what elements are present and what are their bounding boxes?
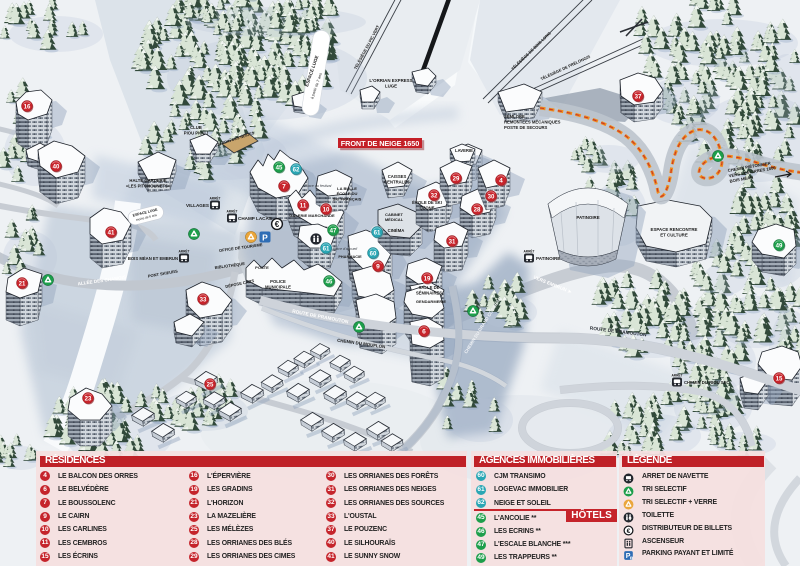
svg-text:15: 15 xyxy=(776,375,783,382)
svg-text:40: 40 xyxy=(53,163,60,170)
svg-text:CINÉMA: CINÉMA xyxy=(388,228,405,233)
svg-text:€: € xyxy=(275,220,280,229)
svg-text:PATINOIRE: PATINOIRE xyxy=(536,256,560,261)
svg-text:CHAMP LACAS: CHAMP LACAS xyxy=(238,216,272,221)
svg-text:61: 61 xyxy=(323,245,330,252)
svg-text:MÉDICAL: MÉDICAL xyxy=(385,217,404,222)
svg-text:ARRÊT: ARRÊT xyxy=(672,373,683,378)
svg-text:4: 4 xyxy=(499,177,503,184)
svg-text:37: 37 xyxy=(635,93,642,100)
svg-text:SÉMINAIRES: SÉMINAIRES xyxy=(416,290,442,295)
svg-text:47: 47 xyxy=(330,227,337,234)
svg-text:HALTE GARDERIE: HALTE GARDERIE xyxy=(129,178,166,183)
svg-text:PIOU PIOU !: PIOU PIOU ! xyxy=(184,130,208,135)
svg-text:POSTE DE SECOURS: POSTE DE SECOURS xyxy=(504,125,548,130)
svg-text:GENDARMERIE: GENDARMERIE xyxy=(416,299,447,304)
svg-text:SKI FRANÇAIS: SKI FRANÇAIS xyxy=(333,196,362,201)
svg-text:29: 29 xyxy=(453,175,460,182)
svg-text:OZONE: OZONE xyxy=(419,205,434,210)
svg-text:32: 32 xyxy=(431,192,438,199)
svg-text:CLUB: CLUB xyxy=(190,125,202,130)
svg-text:41: 41 xyxy=(108,229,115,236)
svg-text:61: 61 xyxy=(374,229,381,236)
svg-text:45: 45 xyxy=(276,164,283,171)
svg-text:7: 7 xyxy=(282,183,286,190)
svg-text:19: 19 xyxy=(424,275,431,282)
svg-text:Place d'accueil: Place d'accueil xyxy=(333,247,358,251)
svg-text:11: 11 xyxy=(300,202,307,209)
svg-text:33: 33 xyxy=(200,296,207,303)
svg-text:ARRÊT: ARRÊT xyxy=(210,196,221,201)
svg-text:LUGE: LUGE xyxy=(385,84,397,89)
svg-text:16: 16 xyxy=(24,103,31,110)
svg-text:ESPACE RENCONTRE: ESPACE RENCONTRE xyxy=(651,227,698,232)
svg-text:28: 28 xyxy=(474,206,481,213)
svg-text:CHEMIN DU RIOU SEC: CHEMIN DU RIOU SEC xyxy=(684,380,729,385)
svg-text:ÉCOLE DU: ÉCOLE DU xyxy=(337,191,358,196)
svg-text:31: 31 xyxy=(449,238,456,245)
svg-text:60: 60 xyxy=(370,250,377,257)
svg-text:62: 62 xyxy=(293,166,300,173)
svg-text:BOIS MÉAN ET EMBRUN: BOIS MÉAN ET EMBRUN xyxy=(128,256,178,261)
svg-text:REMONTÉES MÉCANIQUES: REMONTÉES MÉCANIQUES xyxy=(504,119,561,124)
svg-text:Place du festival: Place du festival xyxy=(305,184,332,188)
svg-text:CENTRALES: CENTRALES xyxy=(384,179,410,184)
svg-text:FRONT DE NEIGE 1650: FRONT DE NEIGE 1650 xyxy=(341,139,419,148)
svg-text:POLICE: POLICE xyxy=(270,279,286,284)
svg-text:POSTE: POSTE xyxy=(255,265,269,270)
svg-text:CAISSES: CAISSES xyxy=(388,174,407,179)
svg-text:€: € xyxy=(626,528,630,535)
svg-text:P: P xyxy=(262,232,268,242)
svg-text:ARRÊT: ARRÊT xyxy=(179,249,190,254)
svg-text:21: 21 xyxy=(19,280,26,287)
svg-text:SEMLORE: SEMLORE xyxy=(504,114,525,119)
svg-text:VILLAGES: VILLAGES xyxy=(186,203,209,208)
svg-text:30: 30 xyxy=(488,193,495,200)
svg-text:ARRÊT: ARRÊT xyxy=(227,209,238,214)
svg-text:L'ORRIAN EXPRESS: L'ORRIAN EXPRESS xyxy=(369,78,412,83)
svg-text:«LES PITCHOUNETS»: «LES PITCHOUNETS» xyxy=(126,183,171,188)
svg-text:ET CULTURE: ET CULTURE xyxy=(660,233,688,238)
svg-text:10: 10 xyxy=(323,206,330,213)
svg-text:49: 49 xyxy=(776,242,783,249)
svg-text:6: 6 xyxy=(422,328,426,335)
svg-text:46: 46 xyxy=(326,278,333,285)
svg-text:PATINOIRE: PATINOIRE xyxy=(576,215,599,220)
svg-text:9: 9 xyxy=(376,263,380,270)
svg-text:LAVERIE: LAVERIE xyxy=(455,148,473,153)
svg-text:PHARMACIE: PHARMACIE xyxy=(338,255,362,259)
svg-text:MUNICIPALE: MUNICIPALE xyxy=(265,284,291,289)
svg-text:SALLE DE: SALLE DE xyxy=(419,285,440,290)
svg-text:23: 23 xyxy=(85,395,92,402)
svg-text:ARRÊT: ARRÊT xyxy=(524,249,535,254)
svg-text:25: 25 xyxy=(207,381,214,388)
